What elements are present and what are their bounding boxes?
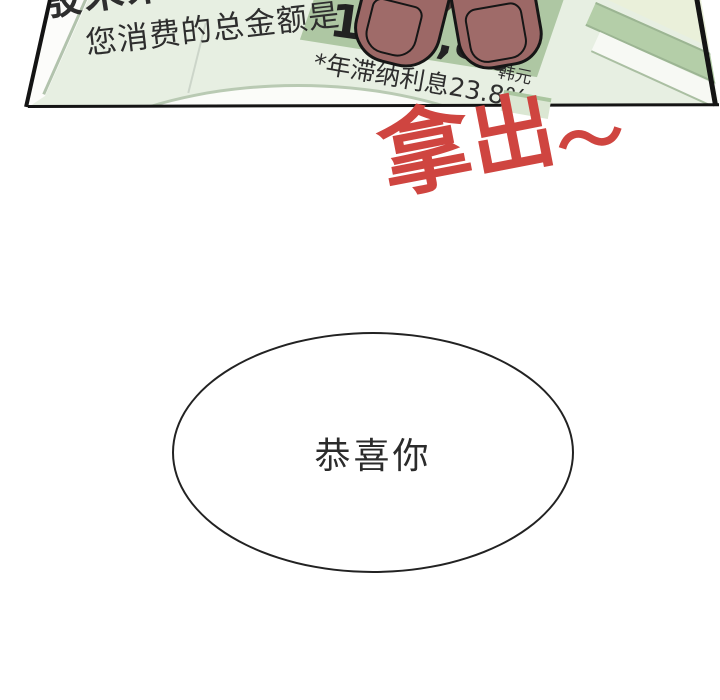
sfx-char-1: 拿 [372, 98, 480, 206]
sfx-char-3: ～ [551, 102, 631, 182]
left-fingernail [361, 0, 425, 61]
speech-bubble: 恭喜你 [172, 332, 574, 573]
comic-page: 殷未来 女士 您消费的总金额是 15 3,8 0 *年滞纳利息23.8% 韩元 … [0, 0, 720, 700]
right-fingernail [463, 1, 530, 66]
sfx-char-2: 出 [463, 86, 561, 184]
speech-bubble-text: 恭喜你 [314, 427, 431, 479]
